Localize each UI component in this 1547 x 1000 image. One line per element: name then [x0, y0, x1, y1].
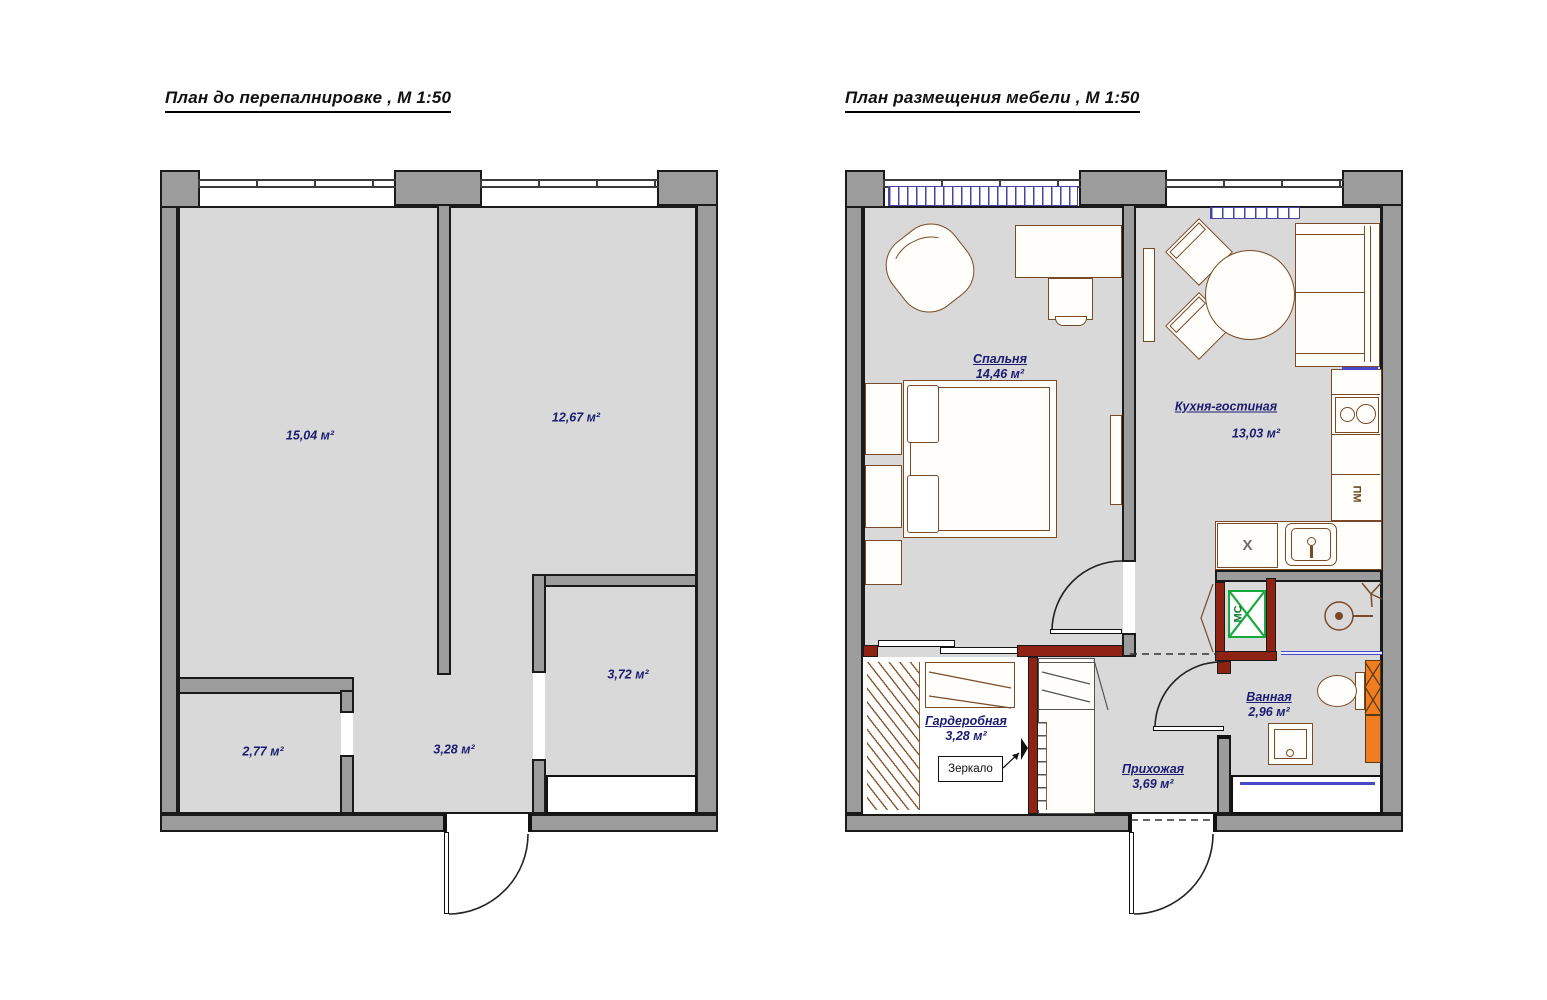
towel-rail-lower: [1365, 715, 1381, 763]
wall-cap: [1217, 735, 1231, 739]
pillow: [907, 475, 939, 533]
wall-pillar: [394, 170, 482, 206]
kitchen-sink: [1285, 523, 1337, 566]
bed: [903, 380, 1057, 538]
wall-v-small-left: [340, 755, 354, 814]
wall-left: [160, 206, 178, 814]
nightstand: [865, 383, 902, 455]
wall-h-lower-left: [178, 677, 354, 694]
wall-divider: [1122, 204, 1136, 562]
bathroom-door-leaf: [1153, 726, 1224, 731]
wall-h-small-right: [532, 574, 697, 587]
wardrobe-label: Гардеробная 3,28 м²: [925, 714, 1007, 744]
wall-right: [1381, 204, 1403, 814]
faucet-icon: [1286, 749, 1294, 757]
wall-pillar: [1079, 170, 1167, 206]
wall-corner-tl: [160, 170, 200, 208]
window-left: [198, 179, 396, 188]
towel-rail: [1365, 660, 1381, 715]
wall-divider-stub: [1122, 633, 1136, 657]
radiator: [888, 186, 1078, 206]
area-label: 3,72 м²: [607, 668, 648, 683]
loggia-niche: [546, 775, 697, 814]
area-label: 3,28 м²: [433, 743, 474, 758]
wall-corner-tl: [845, 170, 885, 208]
wall-left: [845, 206, 863, 814]
sliding-door-panel: [940, 647, 1018, 654]
entrance-opening: [445, 814, 530, 832]
sliding-door-panel: [878, 640, 955, 647]
wall-v-small-right-lower: [532, 759, 546, 814]
hallway-label: Прихожая 3,69 м²: [1122, 762, 1184, 792]
entrance-jamb-left: [1128, 814, 1132, 832]
dishwasher-label: ПМ: [1351, 485, 1363, 502]
mirror-label: Зеркало: [938, 756, 1003, 782]
bedroom-label: Спальня 14,46 м²: [973, 352, 1027, 382]
new-wall-red: [1266, 578, 1276, 654]
new-wall-red: [1217, 661, 1231, 674]
entrance-jamb-left: [443, 814, 447, 832]
plan-before-title: План до перепалнировке , М 1:50: [165, 88, 451, 113]
entrance-jamb-right: [528, 814, 532, 832]
desk: [1015, 225, 1122, 278]
wall-cap: [340, 690, 354, 713]
wall-divider: [437, 204, 451, 675]
clothes-rail: [867, 662, 920, 810]
wall-corner-tr: [657, 170, 718, 206]
desk-chair: [1048, 278, 1093, 320]
desk-chair-back: [1055, 316, 1087, 326]
area-label: 12,67 м²: [552, 411, 600, 426]
window-right: [480, 179, 659, 188]
counter-edge: [1342, 367, 1378, 370]
tv-kitchen: [1143, 248, 1155, 342]
washer-label: МС: [1233, 605, 1245, 622]
radiator: [1210, 207, 1300, 219]
window-right: [1165, 179, 1344, 188]
entrance-door-leaf: [444, 832, 449, 914]
wall-right: [696, 204, 718, 814]
new-wall-red: [1017, 645, 1123, 657]
entrance-door-arc: [1134, 834, 1213, 914]
new-wall-red: [1028, 657, 1038, 814]
wall-bottom: [160, 814, 718, 832]
bathroom-label: Ванная 2,96 м²: [1246, 690, 1291, 720]
cabinet: [865, 540, 902, 585]
kitchen-area-label: 13,03 м²: [1232, 427, 1280, 442]
wall-corner-tr: [1342, 170, 1403, 206]
sofa: [1295, 223, 1380, 367]
kitchen-label: Кухня-гостиная: [1175, 400, 1277, 415]
toilet-bowl: [1317, 675, 1357, 707]
door-opening-small-right: [533, 673, 545, 759]
wardrobe-shelf: [925, 662, 1015, 708]
entrance-opening: [1130, 814, 1215, 832]
door-opening-small-left: [341, 713, 353, 755]
dining-table: [1205, 250, 1295, 340]
new-wall-red: [1215, 582, 1225, 654]
floorplan-sheet: План до перепалнировке , М 1:50 План раз…: [0, 0, 1547, 1000]
wall-bathroom-left: [1217, 735, 1231, 814]
new-wall-red: [1215, 651, 1277, 661]
nightstand: [865, 465, 902, 528]
hob: [1335, 397, 1379, 433]
plan-before: 15,04 м² 12,67 м² 3,72 м² 2,77 м² 3,28 м…: [160, 170, 718, 832]
shower-glass: [1281, 651, 1382, 655]
wall-bottom: [845, 814, 1403, 832]
plan-furniture: Зеркало МС: [845, 170, 1403, 832]
hall-closet-drawers: [1038, 722, 1047, 810]
wall-kitchen-bottom: [1215, 570, 1382, 582]
loggia-niche: [1231, 775, 1382, 814]
entrance-door-leaf: [1129, 832, 1134, 914]
pillow: [907, 385, 939, 443]
hall-closet-top: [1038, 662, 1095, 710]
fridge: Х: [1217, 523, 1278, 568]
bedroom-door-opening: [1123, 562, 1135, 633]
new-wall-red: [863, 645, 878, 657]
area-label: 15,04 м²: [286, 429, 334, 444]
tv-bedroom: [1110, 415, 1122, 505]
area-label: 2,77 м²: [242, 745, 283, 760]
entrance-jamb-right: [1213, 814, 1217, 832]
plan-after-title: План размещения мебели , М 1:50: [845, 88, 1140, 113]
loggia-window: [1240, 782, 1375, 785]
bedroom-door-leaf: [1050, 629, 1122, 634]
wall-v-small-right: [532, 574, 546, 673]
